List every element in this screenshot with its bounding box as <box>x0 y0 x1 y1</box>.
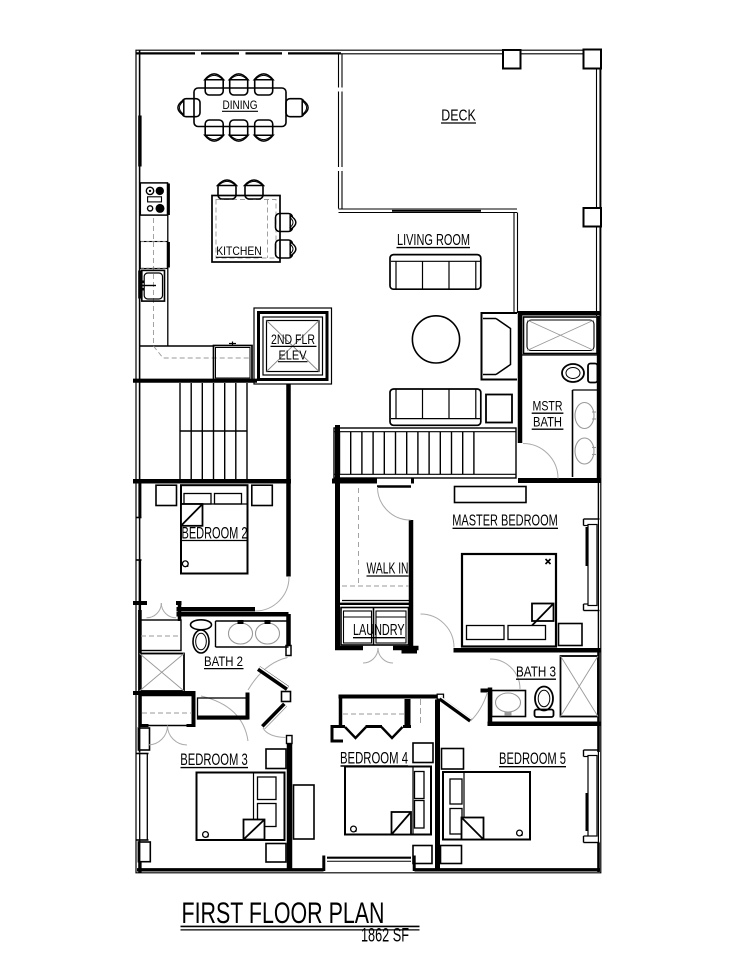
svg-text:DECK: DECK <box>441 108 476 125</box>
svg-text:LIVING ROOM: LIVING ROOM <box>397 232 470 249</box>
svg-text:BEDROOM 2: BEDROOM 2 <box>182 524 248 543</box>
svg-text:FIRST FLOOR PLAN: FIRST FLOOR PLAN <box>182 897 385 930</box>
svg-text:1862 SF: 1862 SF <box>361 926 409 947</box>
svg-text:2ND FLR: 2ND FLR <box>271 332 315 347</box>
svg-text:DINING: DINING <box>223 99 258 112</box>
svg-text:BEDROOM 5: BEDROOM 5 <box>499 749 566 768</box>
svg-text:ELEV: ELEV <box>279 347 307 362</box>
svg-text:BATH: BATH <box>533 415 562 430</box>
svg-text:LAUNDRY: LAUNDRY <box>353 622 405 639</box>
svg-text:BATH 3: BATH 3 <box>516 665 556 681</box>
svg-text:MASTER BEDROOM: MASTER BEDROOM <box>452 513 558 530</box>
svg-text:KITCHEN: KITCHEN <box>216 245 262 258</box>
svg-text:BEDROOM 3: BEDROOM 3 <box>180 750 248 769</box>
svg-text:BEDROOM 4: BEDROOM 4 <box>340 748 408 767</box>
svg-text:WALK IN: WALK IN <box>367 560 409 577</box>
svg-text:BATH 2: BATH 2 <box>204 653 243 669</box>
svg-text:MSTR: MSTR <box>533 399 563 414</box>
